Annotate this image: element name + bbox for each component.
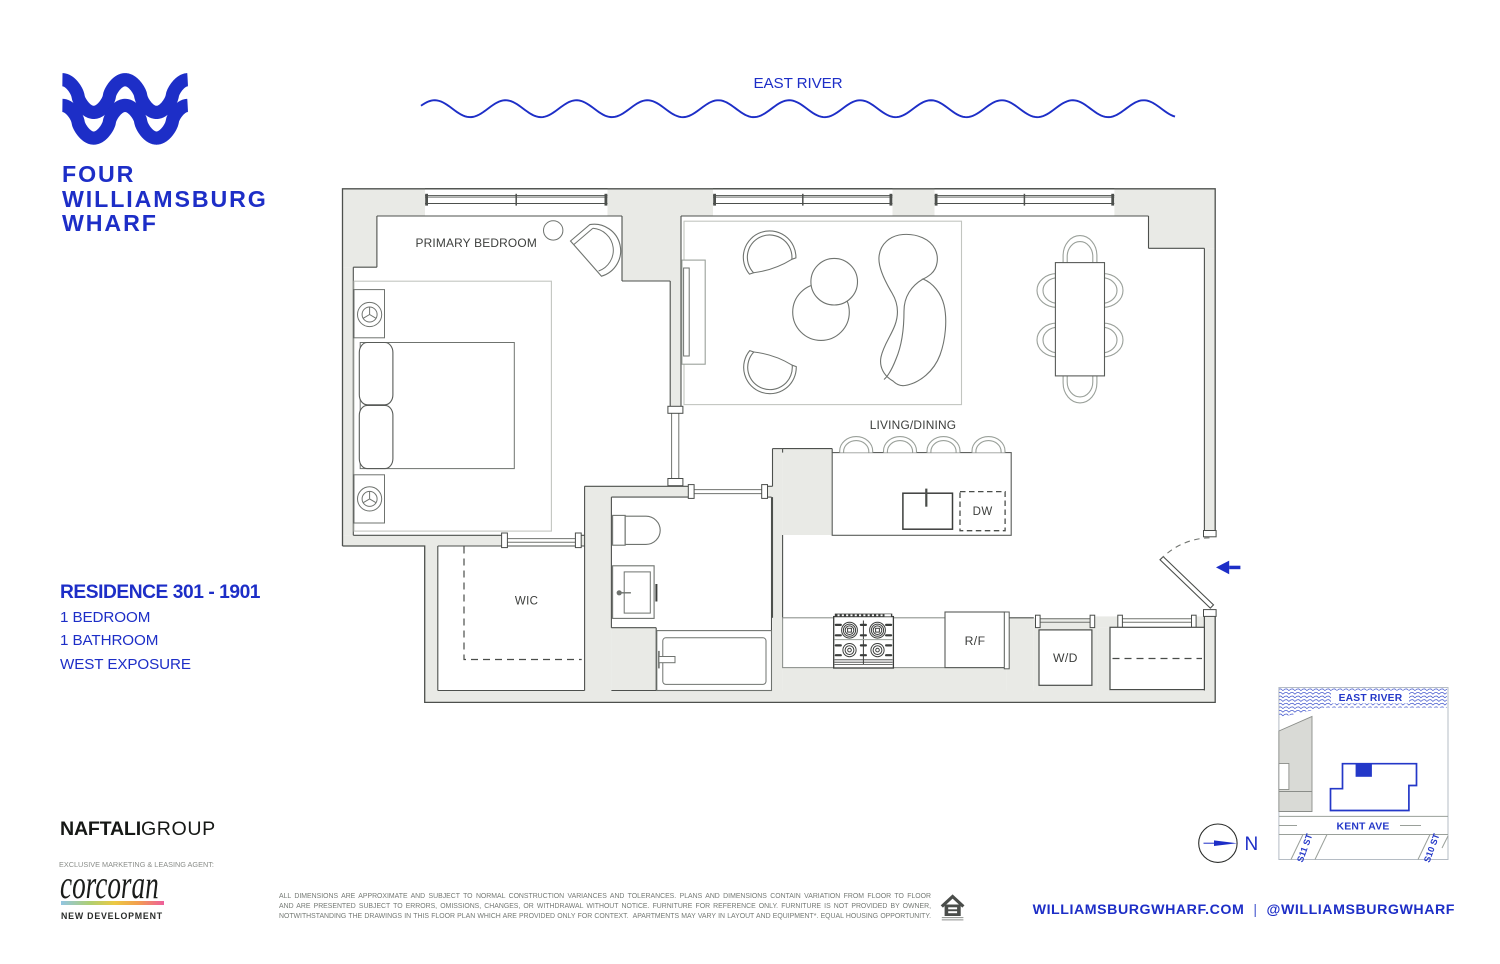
- svg-text:EAST RIVER: EAST RIVER: [1339, 693, 1403, 704]
- svg-text:LIVING/DINING: LIVING/DINING: [870, 418, 957, 432]
- svg-text:DW: DW: [973, 506, 993, 518]
- svg-text:W/D: W/D: [1053, 651, 1078, 665]
- svg-text:KENT AVE: KENT AVE: [1337, 821, 1390, 832]
- svg-text:R/F: R/F: [965, 634, 986, 648]
- svg-text:PRIMARY BEDROOM: PRIMARY BEDROOM: [415, 236, 537, 250]
- svg-text:WIC: WIC: [515, 595, 539, 607]
- svg-text:N: N: [1245, 834, 1259, 855]
